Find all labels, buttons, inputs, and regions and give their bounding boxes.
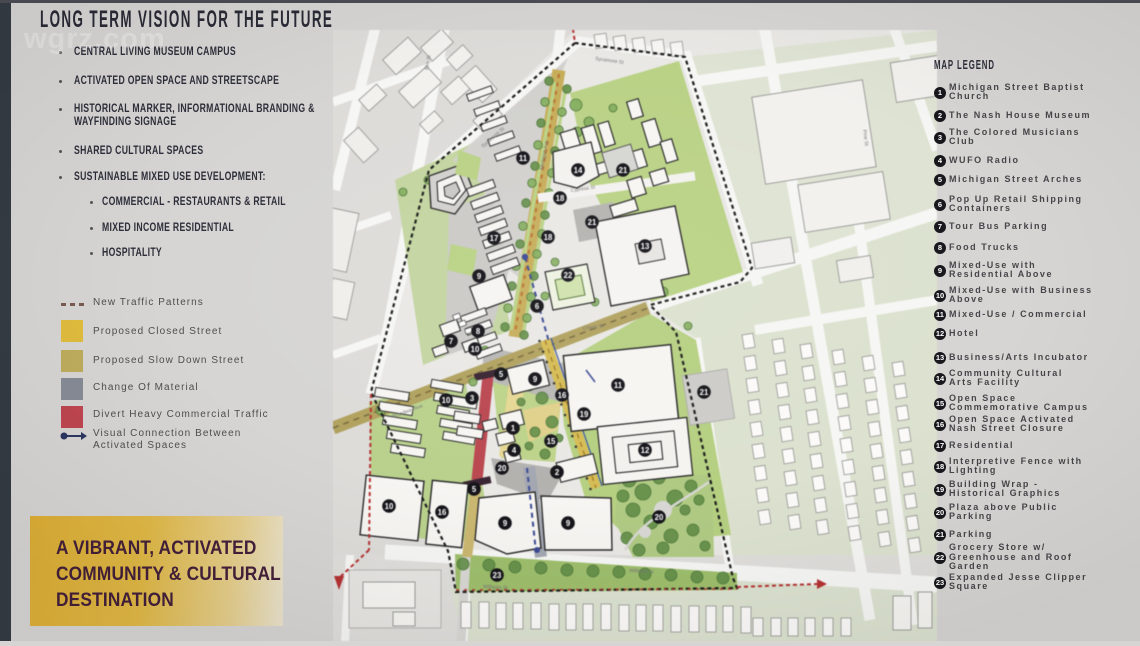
svg-text:20: 20	[655, 513, 664, 522]
svg-text:23: 23	[493, 571, 502, 580]
svg-text:19: 19	[580, 410, 589, 419]
svg-text:13: 13	[641, 242, 650, 251]
svg-text:3: 3	[470, 394, 475, 403]
svg-text:20: 20	[498, 464, 507, 473]
svg-text:7: 7	[449, 337, 453, 346]
svg-text:4: 4	[512, 446, 517, 455]
svg-text:9: 9	[503, 519, 508, 528]
svg-text:10: 10	[385, 502, 394, 511]
svg-text:1: 1	[511, 424, 516, 433]
svg-text:18: 18	[556, 194, 565, 203]
svg-text:11: 11	[519, 154, 528, 163]
svg-text:21: 21	[619, 166, 628, 175]
svg-text:9: 9	[477, 272, 482, 281]
svg-text:2: 2	[555, 468, 560, 477]
svg-text:12: 12	[641, 446, 650, 455]
svg-text:15: 15	[547, 437, 556, 446]
svg-text:17: 17	[490, 234, 499, 243]
svg-text:18: 18	[544, 233, 553, 242]
svg-text:10: 10	[442, 396, 451, 405]
svg-text:9: 9	[566, 519, 571, 528]
svg-text:16: 16	[438, 508, 447, 517]
svg-text:6: 6	[535, 302, 540, 311]
svg-text:10: 10	[471, 345, 480, 354]
svg-text:5: 5	[499, 370, 504, 379]
svg-text:5: 5	[472, 485, 477, 494]
svg-text:16: 16	[558, 391, 567, 400]
svg-text:21: 21	[700, 388, 709, 397]
svg-text:22: 22	[564, 271, 573, 280]
svg-text:11: 11	[614, 381, 623, 390]
svg-text:9: 9	[533, 375, 538, 384]
svg-text:14: 14	[574, 166, 583, 175]
svg-text:21: 21	[588, 218, 597, 227]
svg-text:8: 8	[476, 327, 481, 336]
